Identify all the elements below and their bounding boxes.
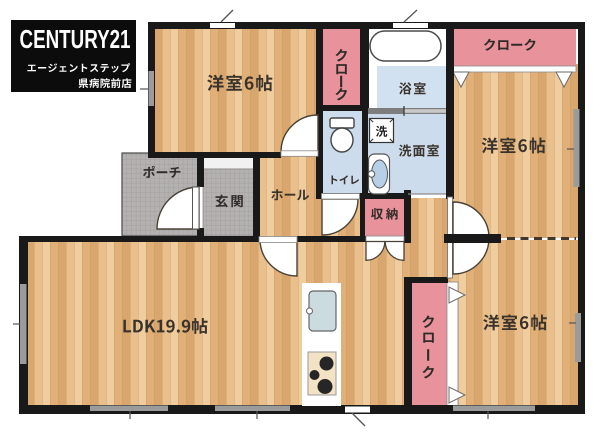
svg-text:CENTURY21: CENTURY21 [20, 24, 131, 54]
